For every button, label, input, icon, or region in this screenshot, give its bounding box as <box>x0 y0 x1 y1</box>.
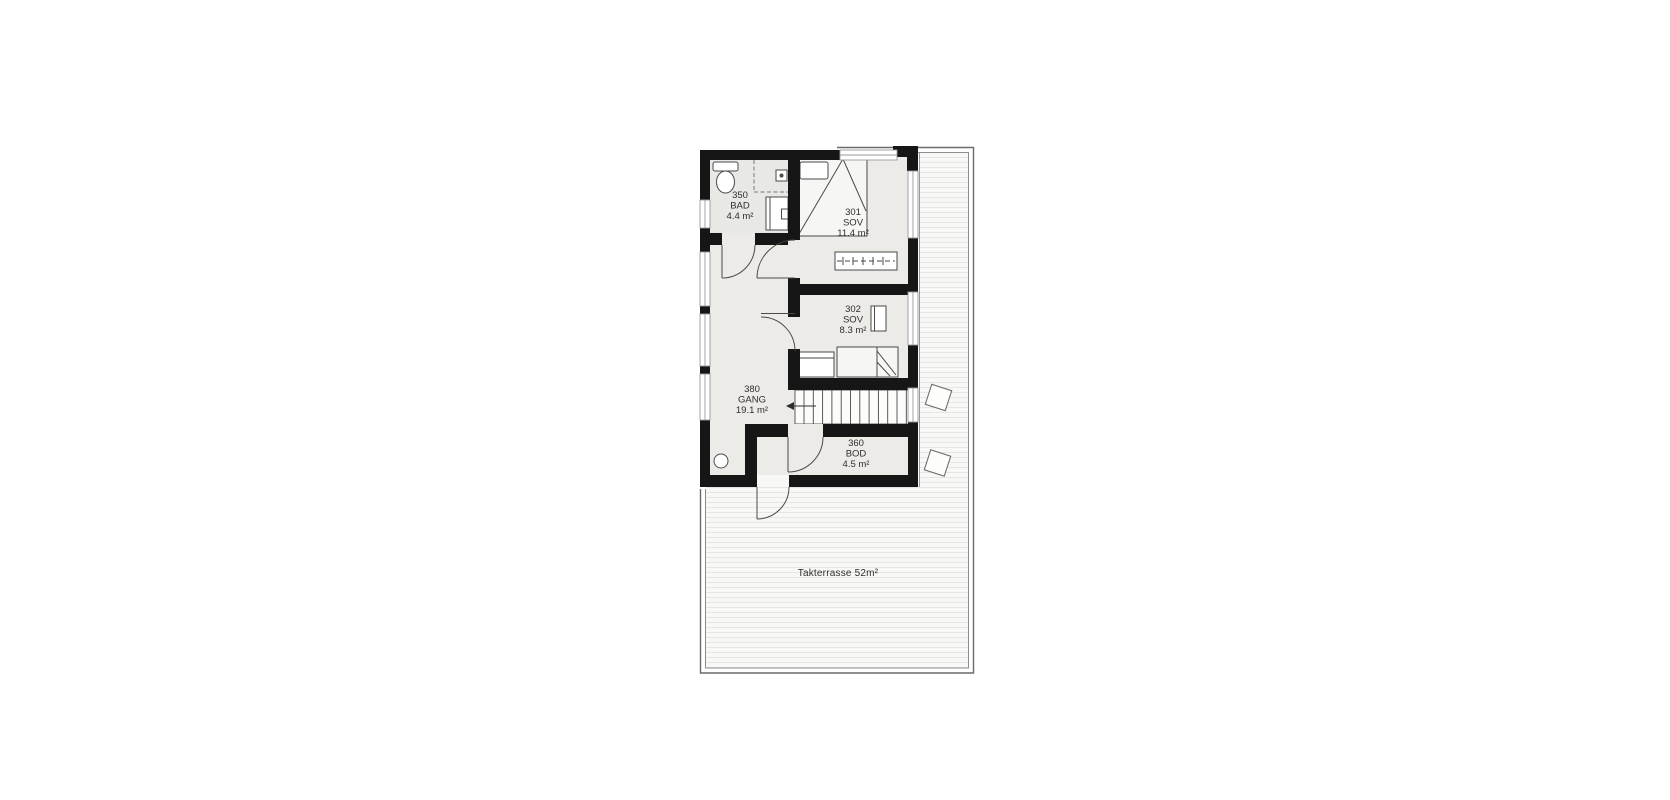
wall-left-mullion-2 <box>700 366 710 374</box>
room-name: SOV <box>843 315 864 326</box>
room-area: 19.1 m² <box>736 405 768 416</box>
room-area: 4.5 m² <box>843 459 870 470</box>
sink-tap <box>782 209 789 219</box>
floor-plan-svg: 350 BAD 4.4 m² 301 SOV 11.4 m² 302 SOV 8… <box>688 136 992 690</box>
bed-302 <box>837 347 898 377</box>
window-left-gang-3 <box>700 374 710 420</box>
room-name: SOV <box>843 218 864 229</box>
window-right-301 <box>908 171 918 238</box>
wall-stair-bod-right <box>823 424 918 437</box>
wall-gang-302-lower <box>788 349 800 379</box>
room-name: BOD <box>846 449 867 460</box>
room-number: 350 <box>732 190 748 201</box>
window-left-bath <box>700 200 710 228</box>
wall-left-mullion-1 <box>700 306 710 314</box>
wall-gang-bod <box>745 424 757 475</box>
room-area: 8.3 m² <box>840 325 867 336</box>
window-right-stair <box>908 388 918 422</box>
terrace-label: Takterrasse 52m² <box>798 568 879 579</box>
wardrobe-302 <box>797 352 834 377</box>
room-number: 301 <box>845 207 861 218</box>
wall-right-1 <box>908 238 918 292</box>
toilet-cistern <box>713 162 738 171</box>
window-right-302 <box>908 292 918 345</box>
floor-plan-canvas: 350 BAD 4.4 m² 301 SOV 11.4 m² 302 SOV 8… <box>0 0 1670 800</box>
room-name: BAD <box>730 201 750 212</box>
room-name: GANG <box>738 395 766 406</box>
room-area: 4.4 m² <box>727 211 754 222</box>
window-top-301 <box>840 150 897 160</box>
window-left-gang-2 <box>700 314 710 366</box>
terrace-side-strip <box>920 153 969 487</box>
room-number: 380 <box>744 384 760 395</box>
desk-302 <box>871 306 886 331</box>
shower-drain-dot <box>780 174 783 177</box>
wall-bath-bottom-left <box>700 233 722 245</box>
room-number: 360 <box>848 438 864 449</box>
wall-left-1 <box>700 150 710 200</box>
wall-301-302 <box>788 284 918 295</box>
wall-302-stair <box>788 378 918 390</box>
wall-bottom-left <box>700 475 757 487</box>
window-left-gang-1 <box>700 252 710 306</box>
wall-bath-right <box>788 158 800 240</box>
room-number: 302 <box>845 304 861 315</box>
wall-bottom-right <box>789 475 918 487</box>
wall-top-right-corner-v <box>907 146 918 171</box>
floor-plan: 350 BAD 4.4 m² 301 SOV 11.4 m² 302 SOV 8… <box>688 136 992 690</box>
wall-top <box>700 150 840 160</box>
floor-drain-circle <box>714 454 728 468</box>
staircase <box>786 390 915 424</box>
bed-301-pillow <box>800 162 828 179</box>
room-area: 11.4 m² <box>837 228 869 239</box>
